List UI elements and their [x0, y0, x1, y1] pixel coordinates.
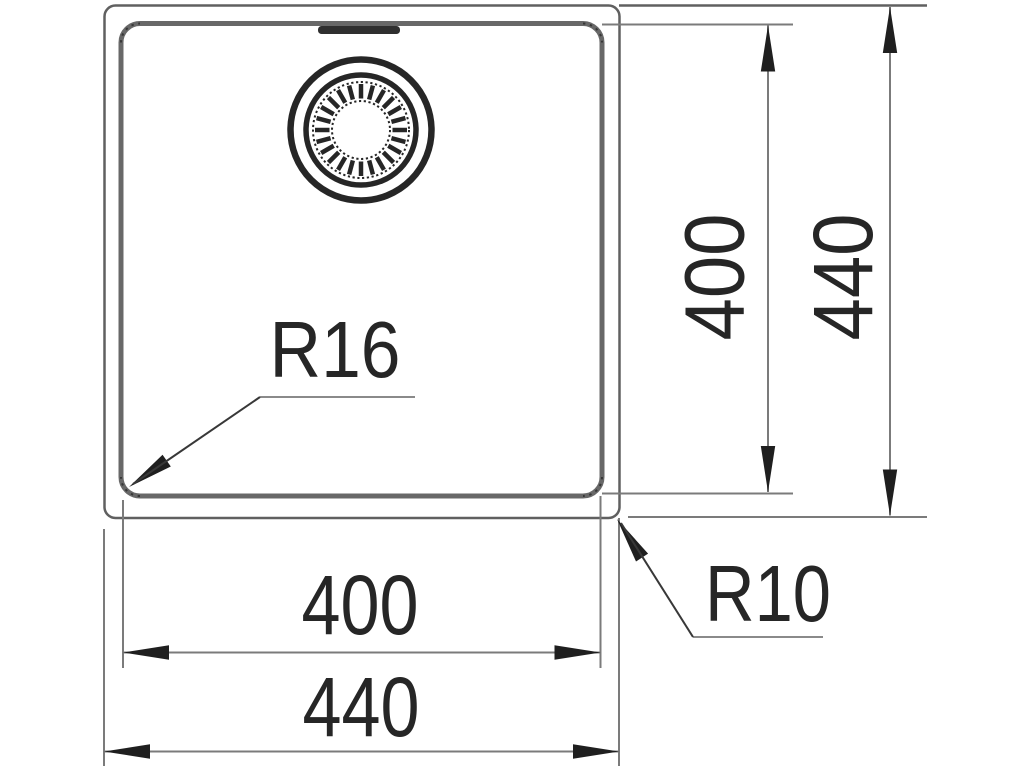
label-outer-depth: 440	[796, 214, 890, 341]
arrow-inner-width-left	[123, 645, 169, 659]
arrow-inner-depth-bottom	[761, 446, 775, 492]
dimension-arrowheads	[104, 7, 897, 759]
extension-lines	[104, 25, 927, 767]
arrow-outer-width-right	[573, 744, 619, 758]
sink-dimension-drawing: 400 440 400 440 R16 R10	[0, 0, 1024, 768]
drain-strainer	[291, 60, 432, 201]
technical-drawing-canvas: 400 440 400 440 R16 R10	[0, 0, 1024, 768]
arrow-inner-width-right	[555, 645, 601, 659]
label-inner-corner-radius: R16	[270, 305, 401, 394]
leader-diagonal-r10	[621, 523, 693, 637]
arrow-outer-width-left	[104, 744, 150, 758]
arrow-inner-depth-top	[761, 26, 775, 72]
leader-diagonal-r16	[133, 397, 260, 484]
drain-dotted-ring-inner	[332, 101, 390, 159]
label-outer-width: 440	[303, 660, 420, 754]
label-outer-corner-radius: R10	[705, 549, 831, 638]
overflow-slot	[318, 26, 400, 34]
dimension-labels: 400 440 400 440 R16 R10	[270, 214, 891, 755]
arrow-outer-depth-bottom	[883, 470, 897, 516]
drain-outer-ring	[291, 60, 432, 201]
label-inner-depth: 400	[668, 214, 762, 341]
label-inner-width: 400	[302, 558, 419, 652]
drain-slots	[315, 84, 407, 176]
dimension-lines	[104, 7, 890, 752]
arrow-outer-depth-top	[883, 7, 897, 53]
